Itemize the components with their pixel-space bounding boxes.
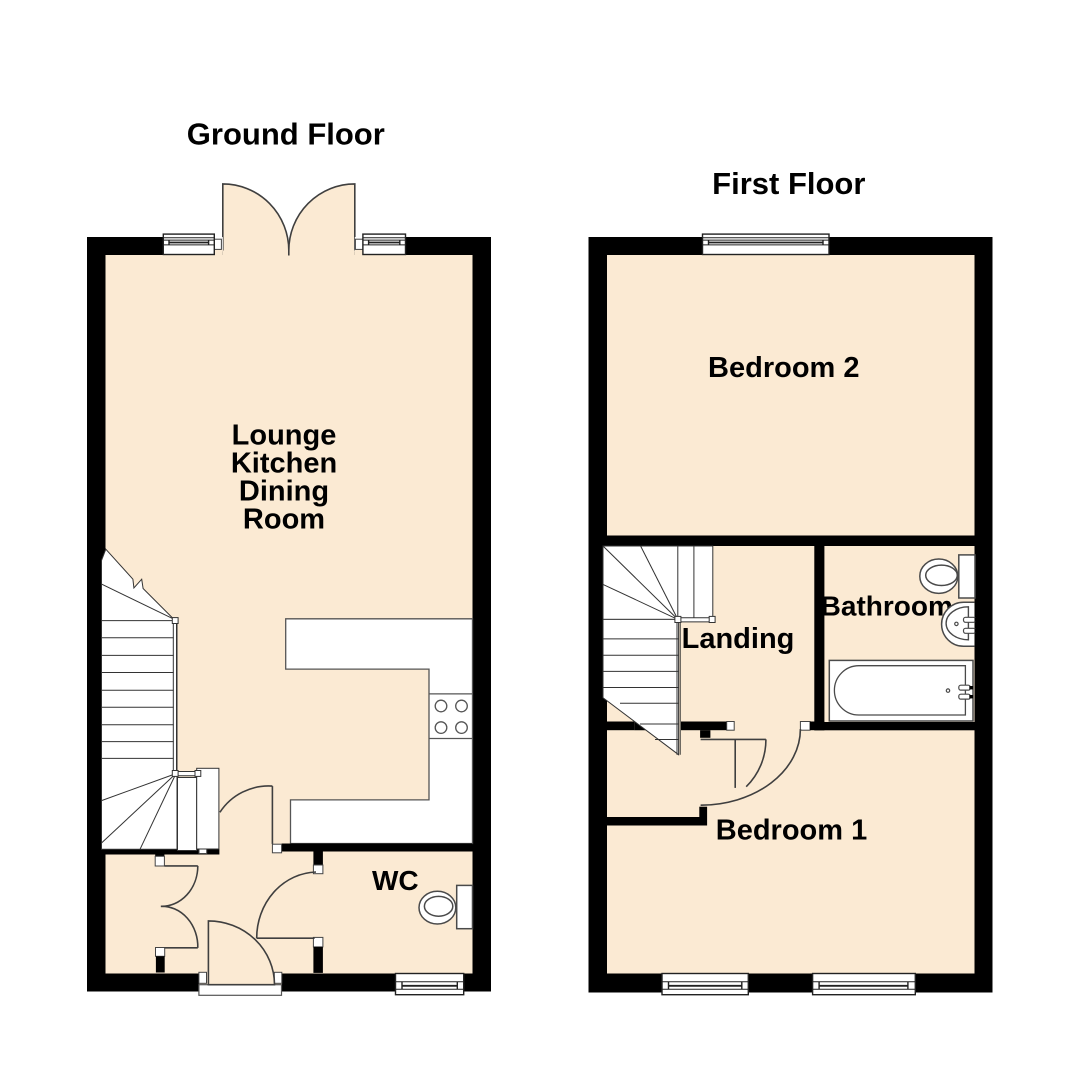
svg-text:Bedroom 1: Bedroom 1: [716, 815, 867, 847]
svg-text:Ground Floor: Ground Floor: [187, 117, 385, 152]
svg-text:Bathroom: Bathroom: [821, 591, 953, 622]
svg-text:Room: Room: [243, 504, 325, 536]
svg-text:WC: WC: [372, 865, 419, 896]
svg-text:Landing: Landing: [682, 623, 795, 655]
svg-text:Bedroom 2: Bedroom 2: [708, 352, 859, 384]
svg-text:First Floor: First Floor: [712, 166, 865, 201]
